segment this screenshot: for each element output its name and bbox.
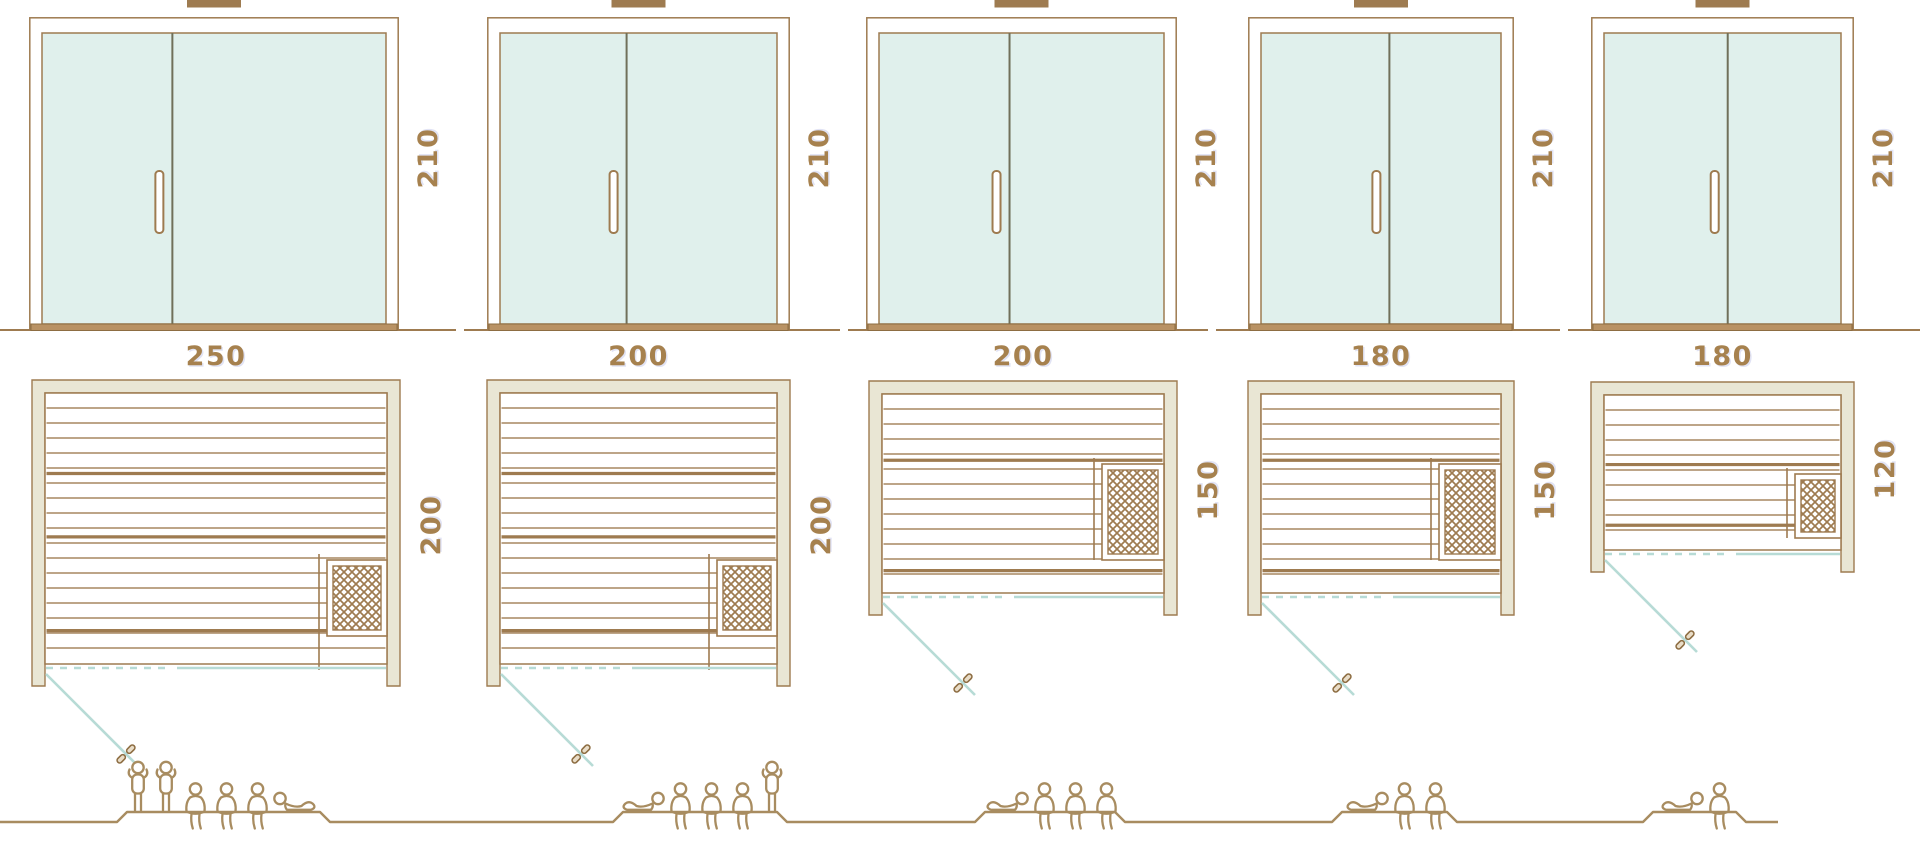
plan-width-label: 250 bbox=[32, 341, 400, 373]
door-height-label: 210 bbox=[804, 113, 836, 203]
door-sill bbox=[1593, 324, 1852, 331]
plan-depth-label: 150 bbox=[1530, 445, 1562, 535]
floor-plan bbox=[1243, 376, 1519, 719]
plan-width-label: 180 bbox=[1591, 341, 1854, 373]
plan-depth-label: 120 bbox=[1870, 424, 1902, 514]
door-sill bbox=[1250, 324, 1512, 331]
plan-depth-label: 200 bbox=[416, 480, 448, 570]
door-glass bbox=[879, 33, 1164, 324]
door-top-cap bbox=[187, 0, 241, 8]
door-swing-line bbox=[1605, 560, 1697, 652]
door-sill bbox=[31, 324, 397, 331]
plan-width-label: 200 bbox=[869, 341, 1177, 373]
floor-plan bbox=[482, 375, 795, 790]
heater-grid bbox=[723, 566, 771, 630]
door-height-label: 210 bbox=[1868, 113, 1900, 203]
door-elevation bbox=[866, 0, 1177, 336]
heater-grid bbox=[333, 566, 381, 630]
floor-plan bbox=[27, 375, 405, 790]
door-swing-line bbox=[1262, 603, 1354, 695]
sauna-size-diagram: 210250200 bbox=[0, 0, 1920, 856]
door-top-cap bbox=[1696, 0, 1750, 8]
door-height-label: 210 bbox=[413, 113, 445, 203]
door-handle bbox=[155, 171, 163, 233]
door-elevation bbox=[1248, 0, 1514, 336]
door-handle bbox=[1372, 171, 1380, 233]
door-glass bbox=[1604, 33, 1841, 324]
door-swing-line bbox=[501, 674, 593, 766]
door-glass bbox=[500, 33, 777, 324]
door-top-cap bbox=[995, 0, 1049, 8]
door-swing-line bbox=[883, 603, 975, 695]
door-glass bbox=[42, 33, 386, 324]
door-elevation bbox=[487, 0, 790, 336]
plan-width-label: 180 bbox=[1248, 341, 1514, 373]
plan-depth-label: 200 bbox=[806, 480, 838, 570]
heater-grid bbox=[1801, 480, 1835, 532]
floor-plan bbox=[1586, 377, 1859, 676]
plan-width-label: 200 bbox=[487, 341, 790, 373]
door-height-label: 210 bbox=[1528, 113, 1560, 203]
plan-depth-label: 150 bbox=[1193, 445, 1225, 535]
heater-grid bbox=[1108, 470, 1158, 554]
heater-grid bbox=[1445, 470, 1495, 554]
door-handle bbox=[993, 171, 1001, 233]
door-swing-line bbox=[46, 674, 138, 766]
door-handle bbox=[1711, 171, 1719, 233]
bench-platform-line bbox=[0, 800, 1920, 856]
door-sill bbox=[489, 324, 788, 331]
door-elevation bbox=[1591, 0, 1854, 336]
door-height-label: 210 bbox=[1191, 113, 1223, 203]
door-handle bbox=[610, 171, 618, 233]
floor-plan bbox=[864, 376, 1182, 719]
door-top-cap bbox=[612, 0, 666, 8]
door-sill bbox=[868, 324, 1175, 331]
door-elevation bbox=[29, 0, 399, 336]
door-top-cap bbox=[1354, 0, 1408, 8]
